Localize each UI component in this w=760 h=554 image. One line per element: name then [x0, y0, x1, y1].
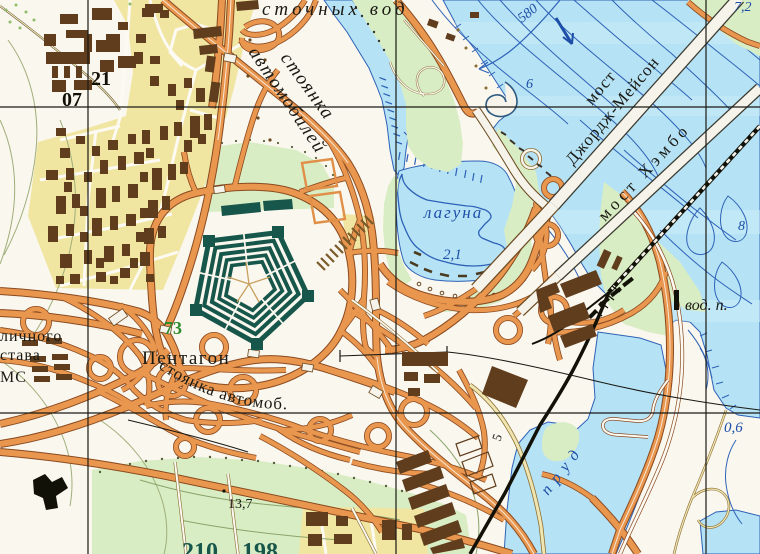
- svg-text:8: 8: [738, 219, 745, 234]
- svg-text:07: 07: [62, 89, 82, 111]
- svg-text:210: 210: [182, 539, 218, 554]
- svg-text:198: 198: [242, 539, 278, 554]
- svg-text:6: 6: [526, 77, 533, 92]
- svg-text:лагуна: лагуна: [423, 203, 483, 222]
- svg-text:МС: МС: [0, 369, 27, 386]
- svg-text:личного: личного: [0, 328, 62, 345]
- svg-text:вод. п.: вод. п.: [685, 297, 728, 314]
- svg-text:2,1: 2,1: [443, 247, 462, 263]
- svg-text:става: става: [0, 347, 41, 364]
- svg-text:Пентагон: Пентагон: [142, 348, 230, 369]
- svg-text:13,7: 13,7: [228, 497, 253, 512]
- svg-text:сточных вод: сточных вод: [262, 0, 409, 20]
- svg-text:7,2: 7,2: [734, 0, 752, 15]
- svg-text:21: 21: [91, 68, 111, 90]
- svg-text:0,6: 0,6: [724, 420, 743, 436]
- svg-text:73: 73: [164, 318, 182, 338]
